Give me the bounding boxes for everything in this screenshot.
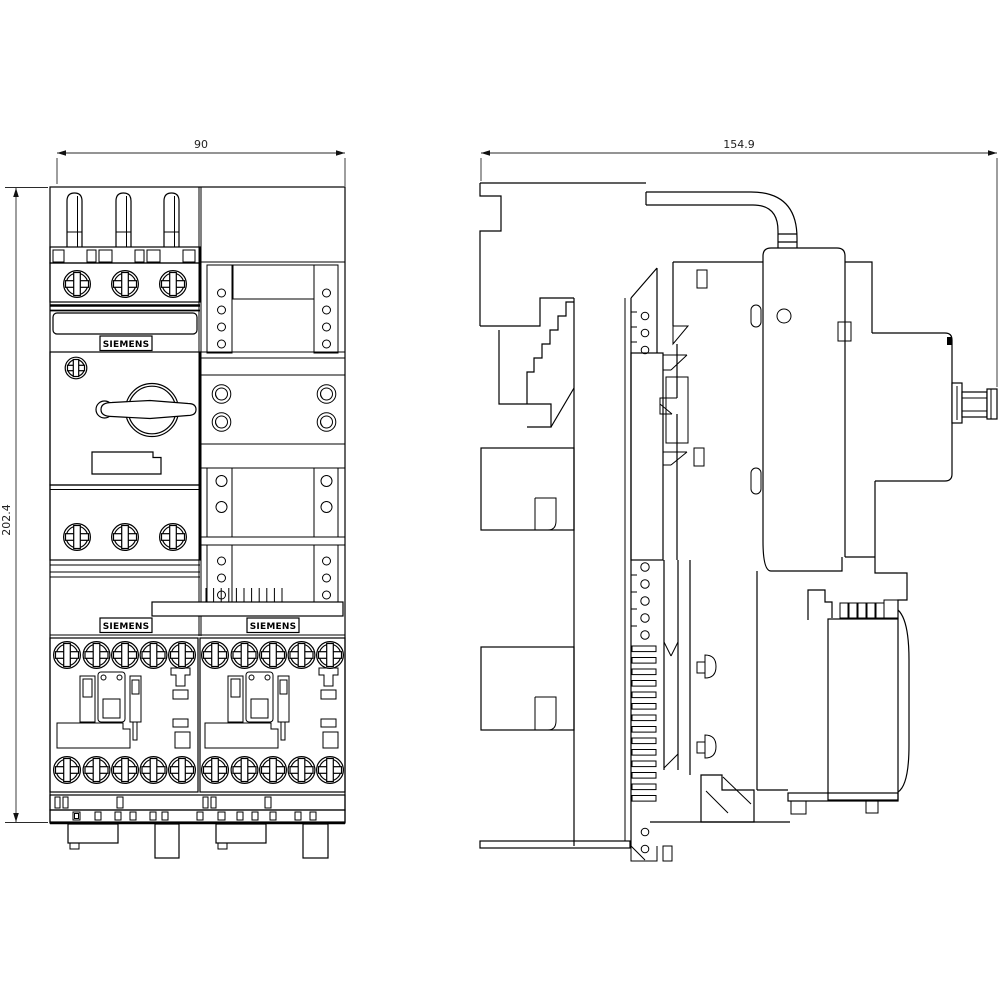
breaker-screw (65, 357, 87, 379)
svg-text:SIEMENS: SIEMENS (103, 340, 150, 350)
mounting-bar (152, 602, 343, 616)
technical-drawing-page: 90 202.4 (0, 0, 1000, 1000)
siemens-label-breaker: SIEMENS (100, 336, 152, 351)
svg-text:SIEMENS: SIEMENS (250, 622, 297, 632)
contactor-left (50, 638, 198, 792)
rotary-handle (96, 384, 196, 437)
side-duct (646, 192, 797, 248)
front-view: 90 202.4 (0, 138, 345, 858)
rating-label (92, 452, 161, 474)
siemens-label-contactor-left: SIEMENS (100, 618, 152, 633)
side-feeder-module (650, 262, 791, 822)
dim-depth-value: 154.9 (723, 138, 755, 151)
line-terminal-screws (50, 263, 200, 302)
svg-text:SIEMENS: SIEMENS (103, 622, 150, 632)
breaker-label-window (53, 313, 197, 334)
side-view: 154.9 (480, 138, 997, 861)
front-dimension-width: 90 (57, 138, 345, 186)
dimension-drawing: 90 202.4 (0, 0, 1000, 1000)
side-mounting-bracket (480, 183, 646, 848)
contactor-right (200, 638, 345, 792)
din-rail-mounting (50, 795, 345, 858)
dim-height-value: 202.4 (0, 504, 13, 536)
side-breaker-body (763, 248, 997, 587)
side-ventilation-fins (632, 646, 656, 801)
upper-terminal-band (50, 247, 200, 263)
feeder-module-front (152, 262, 345, 616)
motor-connection-pins (67, 193, 179, 247)
circuit-breaker-front (50, 352, 200, 485)
rotary-shaft (952, 383, 997, 423)
front-dimension-height: 202.4 (0, 188, 48, 823)
dim-width-value: 90 (194, 138, 208, 151)
load-terminal-screws (50, 485, 200, 577)
siemens-label-contactor-right: SIEMENS (247, 618, 299, 633)
side-contactor-body (788, 587, 909, 814)
